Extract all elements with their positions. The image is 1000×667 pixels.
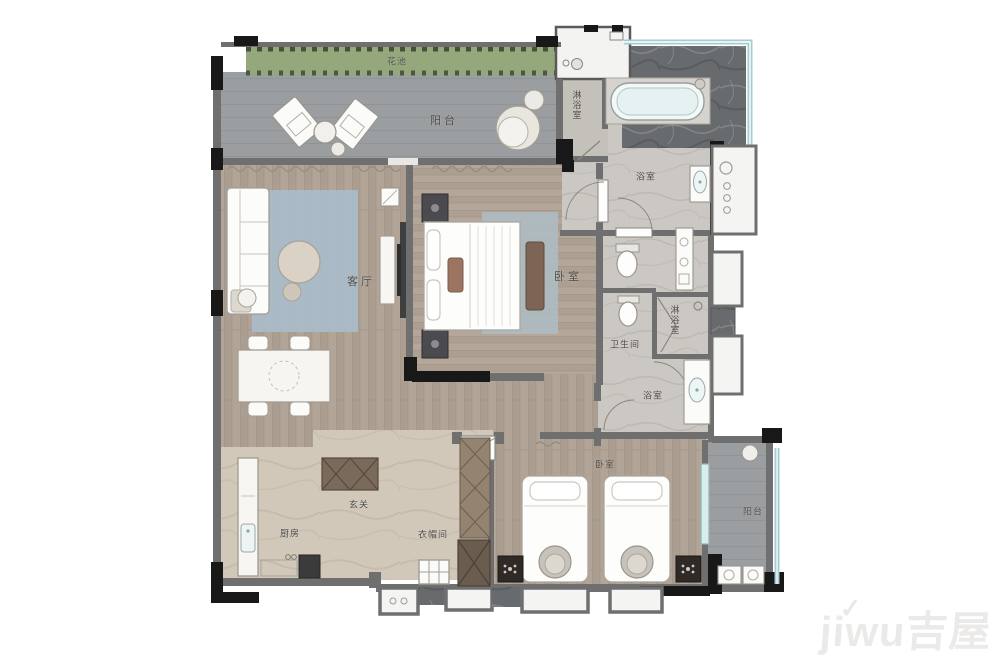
tv-screen — [397, 244, 401, 296]
room-label-toilet: 卫生间 — [610, 338, 640, 351]
tv-console — [380, 236, 395, 304]
coffee-table-small — [283, 283, 301, 301]
window-bay-bottom-3 — [522, 588, 588, 612]
dark-side-table-1 — [498, 556, 523, 582]
room-label-master-bedroom: 卧室 — [554, 268, 582, 284]
balcony-right-planter — [742, 445, 758, 461]
living-pouf — [238, 289, 256, 307]
window-bay-bottom-1 — [380, 588, 418, 614]
kitchen-range — [299, 555, 320, 578]
watermark-brand: jiwu — [819, 608, 908, 655]
kitchen-counter — [238, 458, 258, 576]
armchair-1 — [539, 546, 571, 578]
dark-marble-ledge — [711, 308, 735, 335]
room-label-bath-mid: 浴室 — [643, 389, 663, 402]
washer — [718, 566, 764, 584]
vanity-strip — [676, 228, 693, 290]
bathtub — [606, 78, 710, 124]
floor-equipment-room — [556, 27, 630, 79]
toilet-1 — [616, 244, 639, 277]
armchair-2 — [621, 546, 653, 578]
coffee-table — [278, 241, 320, 283]
window-bay-vanity-room — [712, 146, 756, 234]
dark-side-table-2 — [676, 556, 701, 582]
jiwu-watermark: ✓jiwu吉屋 — [819, 611, 994, 653]
vanity-bath2 — [684, 360, 710, 424]
room-label-shower-mid: 淋浴室 — [669, 305, 682, 335]
equipment-circle-2 — [572, 59, 583, 70]
room-label-balcony-right: 阳台 — [743, 505, 763, 518]
wardrobe-right — [460, 438, 490, 538]
shoe-cabinet — [419, 560, 449, 584]
balcony-stool — [331, 142, 345, 156]
room-label-living-room: 客厅 — [347, 273, 375, 289]
window-bay-bottom-2 — [446, 588, 492, 610]
room-label-cloakroom: 衣帽间 — [418, 528, 448, 541]
room-label-balcony-top: 阳台 — [430, 112, 458, 128]
balcony-planter-small — [524, 90, 544, 110]
threshold-dark-2 — [492, 587, 522, 607]
balcony-side-table — [314, 121, 336, 143]
floor-plan-page: 花池 阳台 淋浴室 浴室 客厅 卧室 卫生间 淋浴室 浴室 玄关 厨房 衣帽间 … — [0, 0, 1000, 667]
window-bay-right-1 — [712, 252, 742, 306]
bed-bench — [526, 242, 544, 310]
room-label-kitchen: 厨房 — [280, 527, 300, 540]
window-bay-right-2 — [712, 336, 742, 394]
side-table-square — [381, 188, 399, 206]
balcony-planter-large-inner — [498, 117, 528, 147]
room-label-shower-top: 淋浴室 — [571, 90, 584, 120]
wardrobe-top — [322, 458, 378, 490]
room-label-flower-bed: 花池 — [387, 55, 407, 68]
vanity-bath-top — [690, 166, 710, 202]
master-bed — [424, 222, 520, 330]
wardrobe-bottom — [458, 540, 490, 586]
threshold-dark-1 — [418, 587, 446, 605]
room-label-foyer: 玄关 — [349, 498, 369, 511]
window-bay-bottom-4 — [610, 588, 662, 612]
room-label-bath-top: 浴室 — [636, 170, 656, 183]
watermark-cn: 吉屋 — [904, 608, 993, 655]
room-label-bedroom-second: 卧室 — [595, 458, 615, 471]
watermark-check-icon: ✓ — [840, 594, 864, 622]
floor-plan-drawing — [0, 0, 1000, 667]
